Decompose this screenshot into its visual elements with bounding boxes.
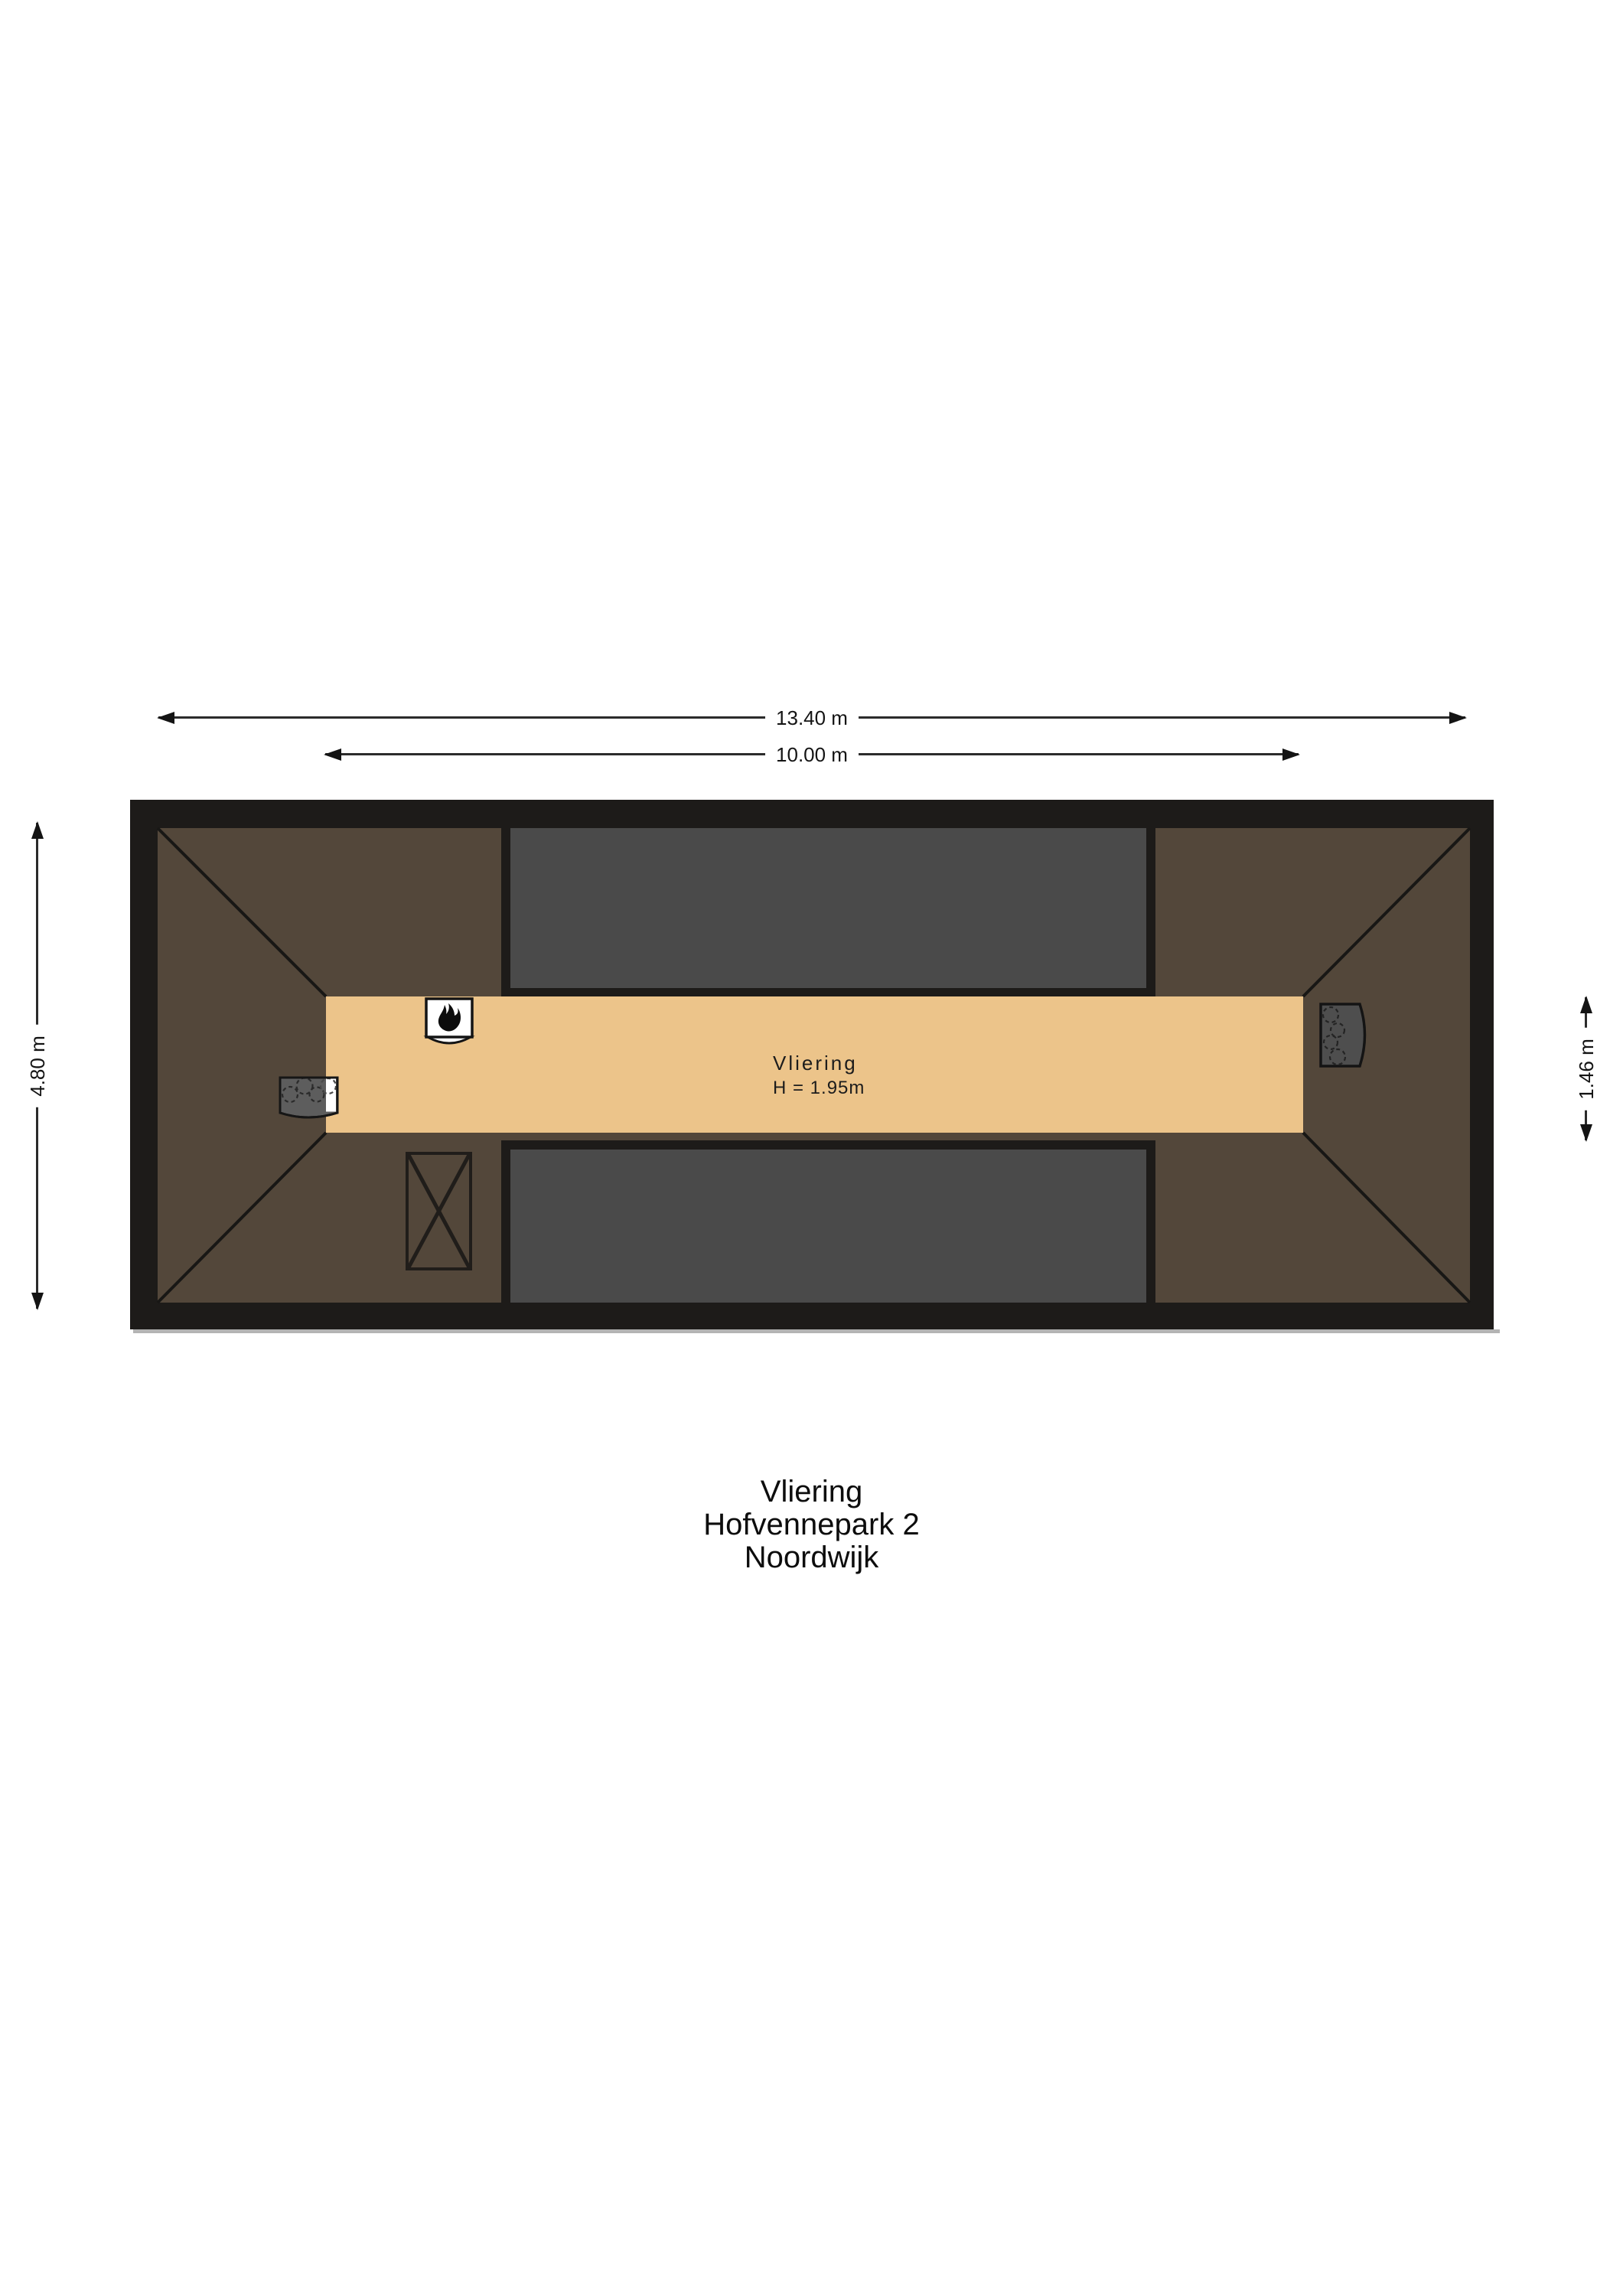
arrow-down-icon [1580,1124,1592,1142]
arrow-left-icon [324,748,341,761]
plan-title-line: Noordwijk [0,1541,1623,1574]
unit-white-panel [326,1079,336,1112]
plan-title-line: Vliering [0,1476,1623,1508]
arrow-up-icon [1580,996,1592,1013]
arrow-left-icon [157,712,174,724]
plan-title-block: Vliering Hofvennepark 2 Noordwijk [0,1476,1623,1574]
dimension-right-depth: 1.46 m [1585,997,1587,1140]
ventilation-unit-left-icon [280,1078,337,1117]
dimension-outer-width: 13.40 m [158,716,1465,719]
arrow-right-icon [1282,748,1300,761]
dimension-left-depth: 4.80 m [36,823,38,1309]
dimension-label-outer-width: 13.40 m [765,706,859,729]
dimension-inner-width: 10.00 m [325,753,1299,755]
dimension-label-right-depth: 1.46 m [1575,1028,1598,1110]
arrow-down-icon [31,1293,44,1310]
dimension-label-left-depth: 4.80 m [26,1025,49,1107]
unit-body [1321,1004,1365,1066]
equipment-icons [130,800,1494,1329]
plan-title-line: Hofvennepark 2 [0,1508,1623,1541]
arrow-up-icon [31,821,44,839]
ventilation-unit-right-icon [1321,1004,1365,1066]
boiler-icon [426,999,472,1043]
floorplan-page: 13.40 m 10.00 m 4.80 m 1.46 m [0,0,1623,2296]
plan-drop-shadow [133,1329,1500,1333]
arrow-right-icon [1449,712,1467,724]
attic-floorplan: Vliering H = 1.95m [130,800,1494,1329]
dimension-label-inner-width: 10.00 m [765,743,859,766]
